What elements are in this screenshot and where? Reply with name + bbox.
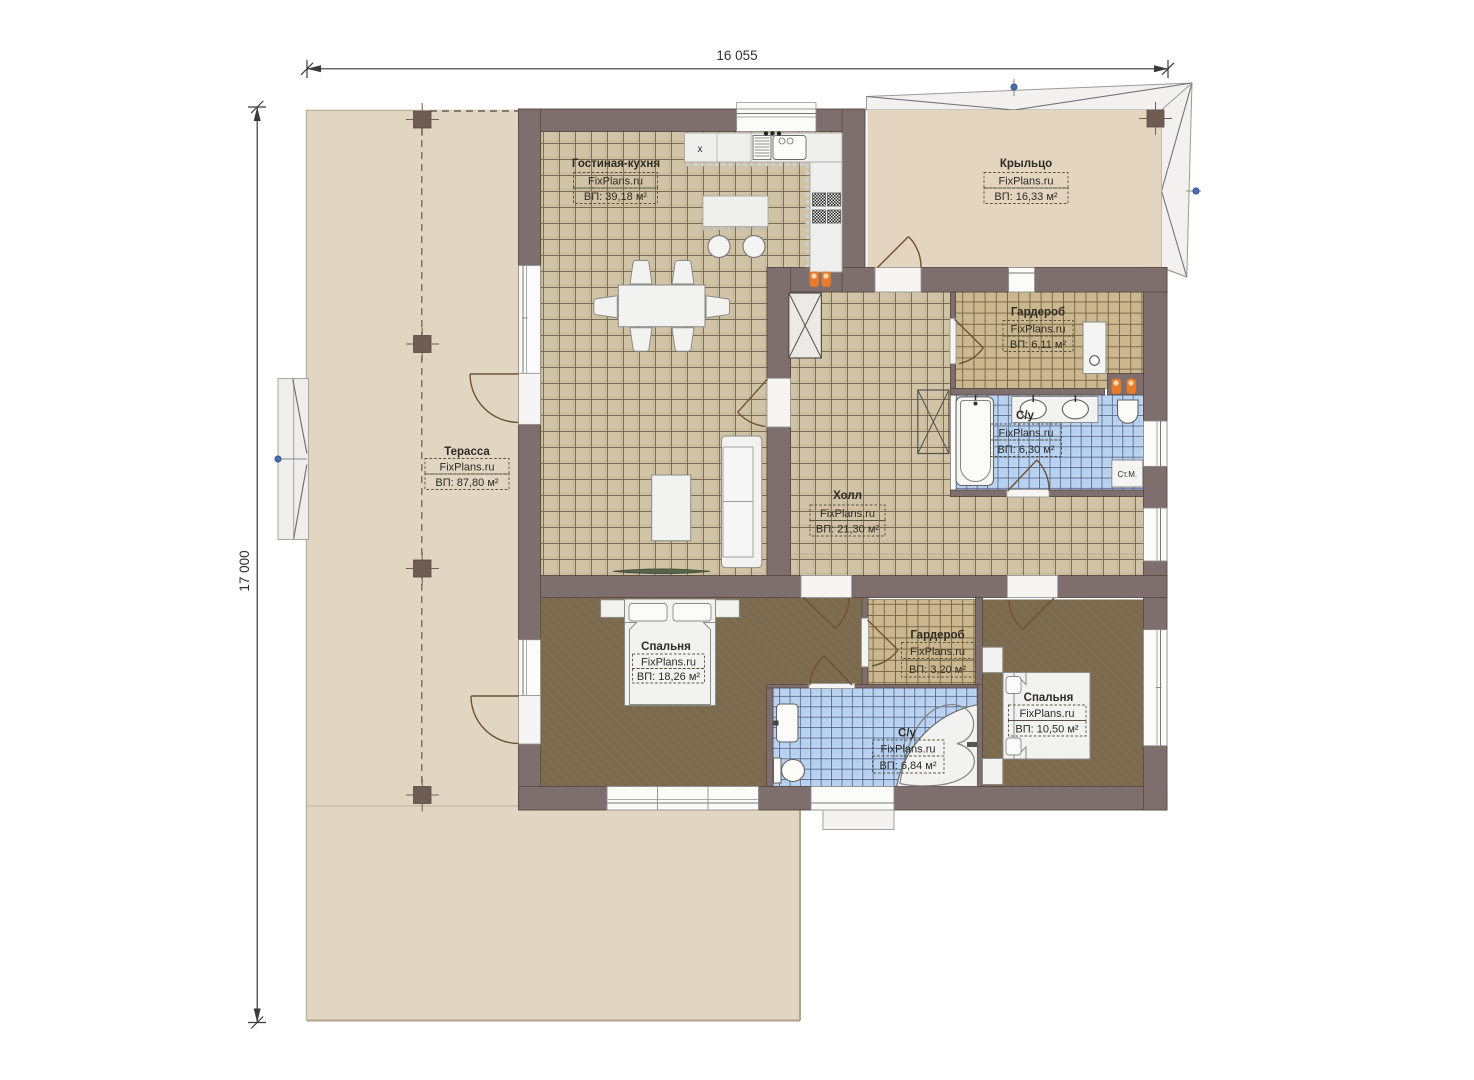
svg-text:ВП: 39,18 м²: ВП: 39,18 м²	[584, 191, 648, 203]
svg-text:ВП: 6,84 м²: ВП: 6,84 м²	[879, 760, 936, 772]
svg-text:x: x	[698, 144, 703, 155]
svg-text:FixPlans.ru: FixPlans.ru	[910, 646, 965, 658]
svg-text:ВП: 21,30 м²: ВП: 21,30 м²	[816, 524, 880, 536]
svg-text:16 055: 16 055	[716, 48, 757, 63]
svg-text:ВП: 18,26 м²: ВП: 18,26 м²	[637, 671, 701, 683]
svg-text:ВП: 10,50 м²: ВП: 10,50 м²	[1015, 724, 1079, 736]
svg-text:FixPlans.ru: FixPlans.ru	[820, 508, 875, 520]
svg-text:Гостиная-кухня: Гостиная-кухня	[572, 158, 660, 170]
svg-text:ВП: 6,30 м²: ВП: 6,30 м²	[997, 444, 1054, 456]
svg-text:FixPlans.ru: FixPlans.ru	[998, 176, 1053, 188]
svg-text:С/у: С/у	[898, 728, 917, 740]
svg-text:С/у: С/у	[1016, 410, 1035, 422]
svg-text:Крыльцо: Крыльцо	[1000, 158, 1052, 170]
svg-text:Ст.М.: Ст.М.	[1117, 470, 1137, 479]
svg-text:FixPlans.ru: FixPlans.ru	[1019, 708, 1074, 720]
svg-text:FixPlans.ru: FixPlans.ru	[998, 428, 1053, 440]
svg-text:Спальня: Спальня	[641, 641, 691, 653]
svg-text:Холл: Холл	[833, 490, 862, 502]
svg-text:ВП: 3,20 м²: ВП: 3,20 м²	[909, 664, 966, 676]
svg-text:FixPlans.ru: FixPlans.ru	[439, 462, 494, 474]
svg-text:Гардероб: Гардероб	[910, 630, 964, 642]
svg-text:Спальня: Спальня	[1024, 692, 1074, 704]
svg-text:FixPlans.ru: FixPlans.ru	[880, 744, 935, 756]
svg-text:ВП: 16,33 м²: ВП: 16,33 м²	[994, 191, 1058, 203]
svg-text:FixPlans.ru: FixPlans.ru	[588, 176, 643, 188]
svg-text:FixPlans.ru: FixPlans.ru	[1010, 324, 1065, 336]
svg-text:ВП: 87,80 м²: ВП: 87,80 м²	[435, 477, 499, 489]
svg-text:17 000: 17 000	[237, 550, 252, 591]
svg-text:Терасса: Терасса	[444, 446, 490, 458]
svg-text:FixPlans.ru: FixPlans.ru	[641, 657, 696, 669]
svg-text:ВП: 6,11 м²: ВП: 6,11 м²	[1010, 339, 1067, 351]
svg-text:Гардероб: Гардероб	[1011, 307, 1065, 319]
